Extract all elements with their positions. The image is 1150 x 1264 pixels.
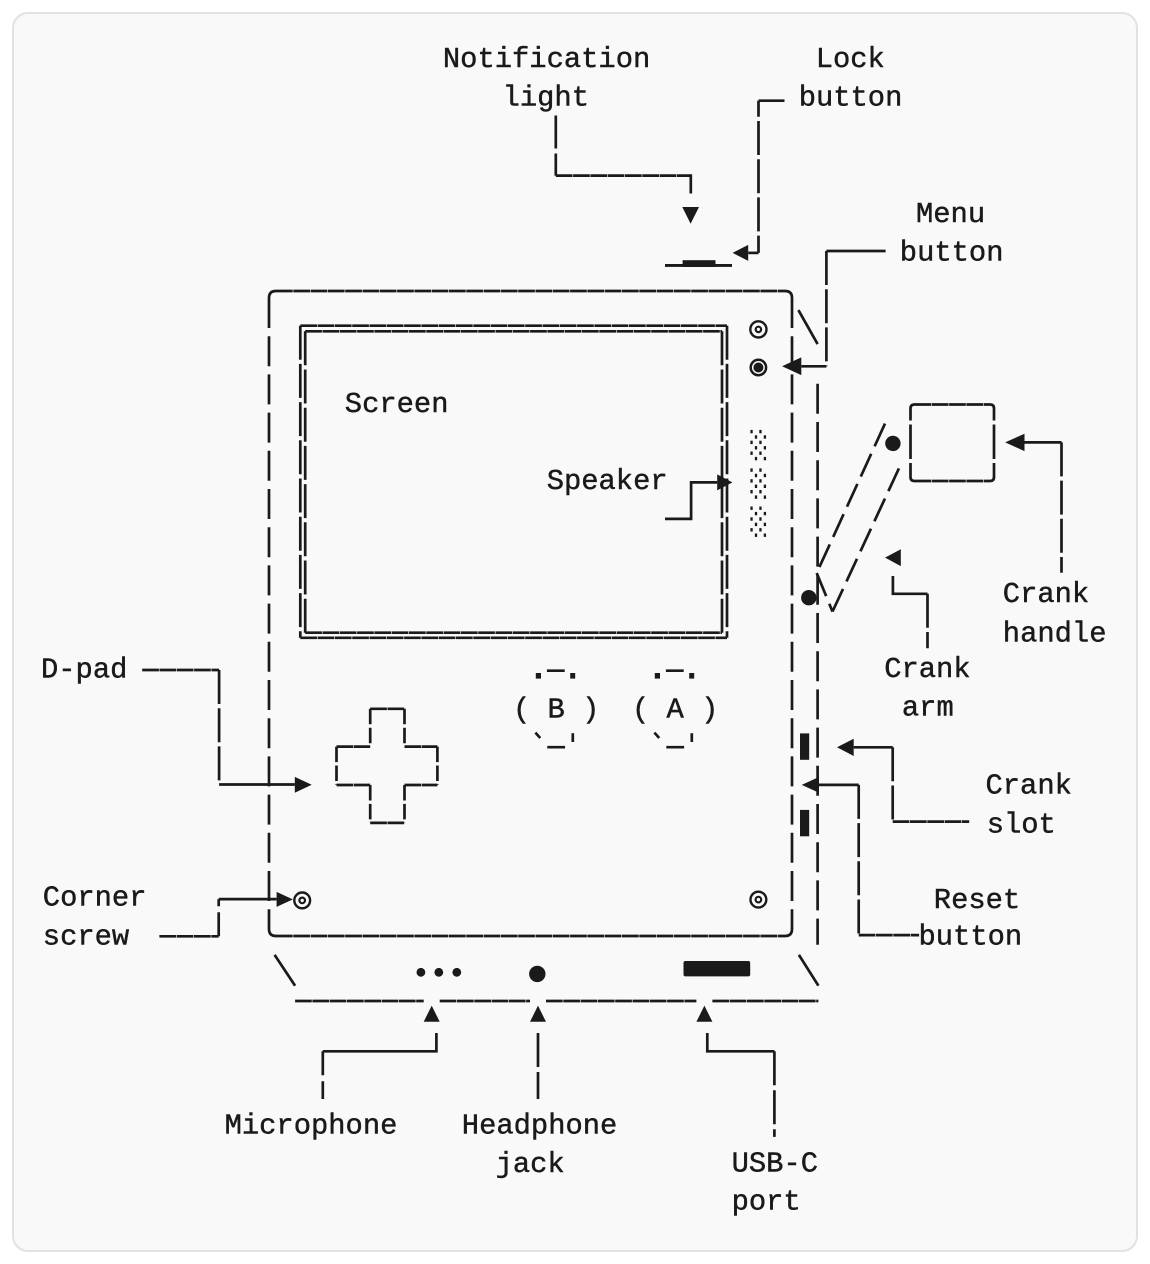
svg-text:button: button <box>799 81 903 114</box>
svg-text:arm: arm <box>902 692 954 725</box>
svg-text:port: port <box>732 1186 801 1219</box>
svg-text:USB-C: USB-C <box>732 1148 818 1181</box>
svg-text:Reset: Reset <box>934 884 1020 917</box>
svg-text:light: light <box>503 81 589 114</box>
svg-text:( A ): ( A ) <box>632 694 718 727</box>
svg-text:Notification: Notification <box>443 43 650 76</box>
svg-text:screw: screw <box>43 921 129 954</box>
svg-text:slot: slot <box>987 809 1056 842</box>
svg-text:( B ): ( B ) <box>513 694 599 727</box>
svg-text:Speaker: Speaker <box>547 465 668 498</box>
svg-text:jack: jack <box>496 1148 565 1181</box>
svg-text:Headphone: Headphone <box>462 1110 618 1143</box>
svg-text:handle: handle <box>1003 618 1107 651</box>
svg-text:Crank: Crank <box>1003 578 1089 611</box>
svg-text:D-pad: D-pad <box>41 653 127 686</box>
svg-text:button: button <box>900 237 1004 270</box>
svg-text:Crank: Crank <box>986 770 1072 803</box>
svg-text:Microphone: Microphone <box>225 1110 398 1143</box>
svg-text:Screen: Screen <box>345 388 449 421</box>
svg-text:Menu: Menu <box>916 198 985 231</box>
svg-text:Crank: Crank <box>884 653 970 686</box>
svg-text:button: button <box>919 921 1023 954</box>
svg-text:Corner: Corner <box>43 882 147 915</box>
svg-text:Lock: Lock <box>816 43 885 76</box>
